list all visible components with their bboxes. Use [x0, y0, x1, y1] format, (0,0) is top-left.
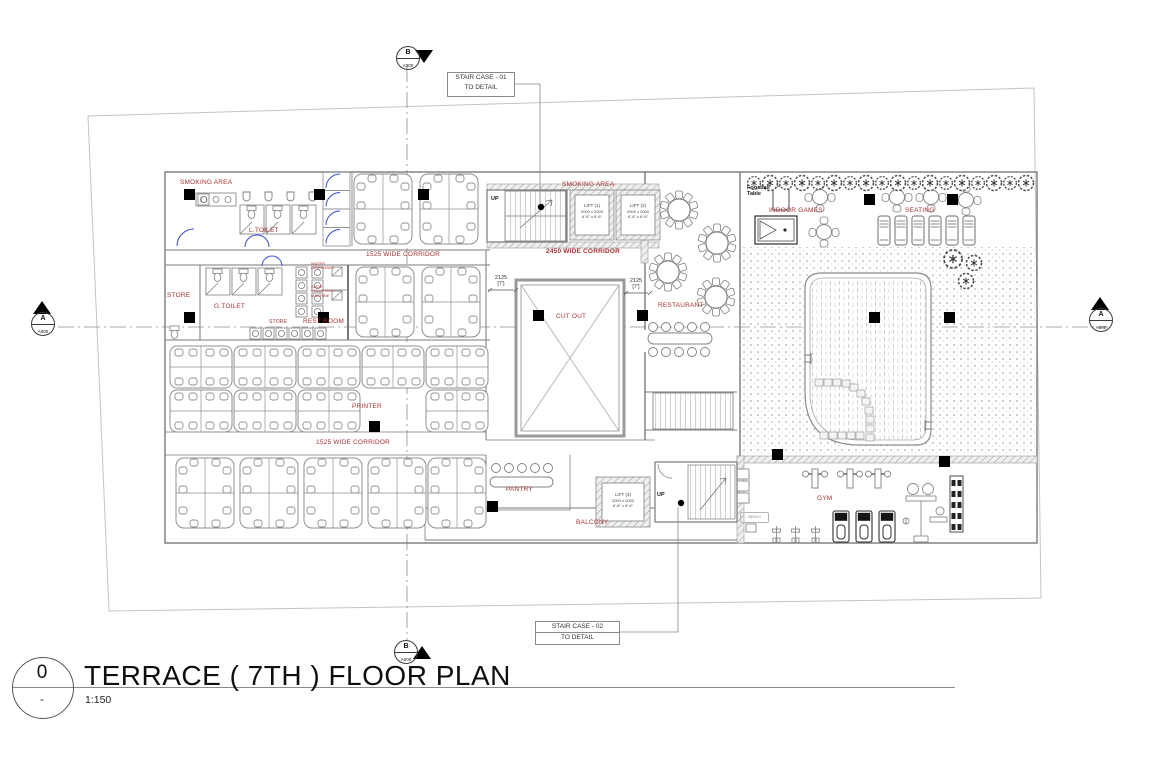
pool-lawn — [805, 273, 931, 445]
gents-toilet-fixtures — [170, 267, 342, 339]
section-marker-right: A A000 — [1089, 308, 1113, 332]
label-cut-out: CUT OUT — [556, 313, 586, 320]
section-marker-right-sheet: A000 — [1089, 325, 1113, 330]
label-corridor-1525-top: 1525 WIDE CORRIDOR — [366, 251, 440, 258]
section-marker-right-letter: A — [1089, 311, 1113, 318]
callout-staircase-01-line1: STAIR CASE - 01 — [448, 73, 514, 83]
lift-2-dim-ft: 6'-6" x 6'-6" — [618, 214, 658, 219]
section-marker-top-sheet: A000 — [396, 63, 420, 68]
label-balcony: BALCONY — [576, 519, 608, 526]
pantry-furniture — [490, 464, 553, 488]
callout-staircase-02-line1: STAIR CASE - 02 — [536, 622, 619, 632]
drawing-title: TERRACE ( 7TH ) FLOOR PLAN — [84, 660, 511, 692]
cut-out-shaft — [516, 280, 624, 436]
lift-1-dim-ft: 6'-6" x 6'-6" — [572, 214, 612, 219]
label-seating: SEATING — [905, 207, 934, 214]
dumbbell-rack — [950, 476, 963, 532]
label-smoking-area-1: SMOKING AREA — [180, 179, 232, 186]
lift-3-dim-ft: 6'-6" x 6'-6" — [603, 503, 643, 508]
label-bench: BENCH — [740, 512, 769, 523]
callout-staircase-02-line2: TO DETAIL — [536, 632, 619, 643]
staircase-02 — [655, 462, 737, 522]
dim-cutout-right-ft: [7'] — [622, 284, 650, 290]
label-restaurant: RESTAURANT — [658, 302, 704, 309]
label-corridor-2450: 2450 WIDE CORRIDOR — [546, 248, 620, 255]
floor-plan-sheet: SMOKING AREA SMOKING AREA L.TOILET 1525 … — [0, 0, 1165, 768]
section-marker-left-sheet: A000 — [31, 329, 55, 334]
staircase-01 — [487, 190, 567, 242]
label-up-1: UP — [491, 196, 499, 202]
title-block: 0 - TERRACE ( 7TH ) FLOOR PLAN 1:150 — [0, 650, 1000, 730]
label-foosball-table: Foosball Table — [747, 185, 775, 197]
restaurant-furniture — [648, 191, 736, 429]
label-printer: PRINTER — [352, 403, 382, 410]
callout-staircase-01-line2: TO DETAIL — [448, 83, 514, 93]
label-indoor-games: INDOOR GAMES — [769, 207, 823, 214]
label-l-toilet: L.TOILET — [249, 227, 279, 234]
label-g-toilet: G.TOILET — [214, 303, 245, 310]
dim-cutout-left: 2125 [7'] — [487, 275, 515, 287]
label-smoking-area-2: SMOKING AREA — [562, 181, 614, 188]
label-gym: GYM — [817, 495, 832, 502]
drawing-scale: 1:150 — [85, 694, 111, 706]
label-pantry: PANTRY — [506, 486, 533, 493]
dim-cutout-left-ft: [7'] — [487, 281, 515, 287]
gym-equipment — [737, 469, 963, 543]
label-lift-3: LIFT (3) 2000 x 2000 6'-6" x 6'-6" — [603, 492, 643, 508]
callout-staircase-01: STAIR CASE - 01 TO DETAIL — [447, 72, 515, 97]
label-store-2: STORE — [269, 320, 287, 326]
drawing-number: 0 — [12, 662, 72, 684]
section-marker-left: A A000 — [31, 312, 55, 336]
label-up-2: UP — [657, 492, 665, 498]
door-swings — [177, 174, 340, 266]
section-marker-left-letter: A — [31, 315, 55, 322]
label-shoe-polishing-machine: SHOE POLISHING MACHINE — [311, 285, 337, 298]
label-water-dispenser: WATER DISPENSER — [311, 262, 337, 271]
label-store-1: STORE — [167, 292, 190, 299]
section-marker-top-letter: B — [396, 49, 420, 56]
label-rest-room: REST ROOM — [303, 318, 344, 325]
dim-cutout-right: 2125 [7'] — [622, 278, 650, 290]
drawing-number-sub: - — [12, 694, 72, 706]
callout-staircase-02: STAIR CASE - 02 TO DETAIL — [535, 621, 620, 645]
section-marker-bottom-letter: B — [394, 643, 418, 650]
label-lift-1: LIFT (1) 2000 x 2000 6'-6" x 6'-6" — [572, 203, 612, 219]
section-marker-top: B A000 — [396, 46, 420, 70]
label-corridor-1525-bottom: 1525 WIDE CORRIDOR — [316, 439, 390, 446]
label-lift-2: LIFT (2) 2000 x 2000 6'-6" x 6'-6" — [618, 203, 658, 219]
